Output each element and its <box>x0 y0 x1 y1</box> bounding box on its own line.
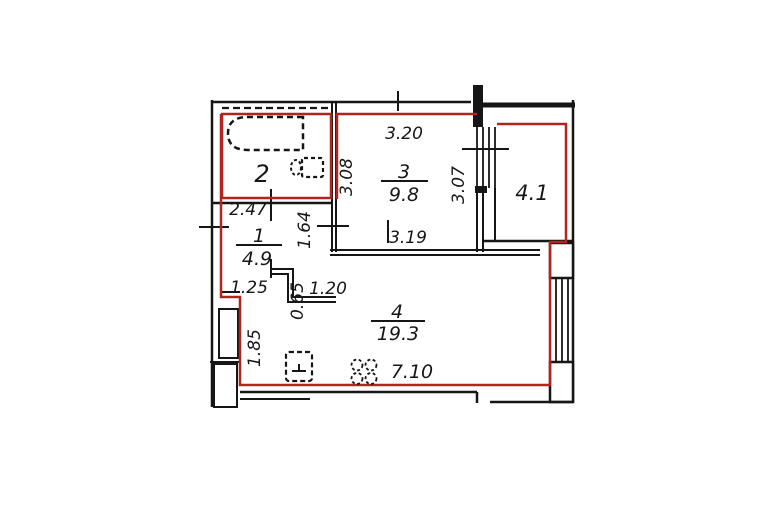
dimension-bathroom-width: 2.47 <box>229 200 267 220</box>
wall-pier-left-2 <box>214 364 237 407</box>
dimension-hall-bottom-left: 1.25 <box>230 278 268 298</box>
bathroom-number: 2 <box>254 160 269 188</box>
dimension-hall-step: 0.65 <box>288 282 308 320</box>
balcony-area: 4.1 <box>515 181 548 205</box>
wall-interior-vertical <box>332 102 336 252</box>
wall-room3-room4 <box>330 250 540 255</box>
dimension-room3-right: 3.07 <box>449 166 469 204</box>
dimension-hall-right: 1.64 <box>295 211 315 249</box>
toilet-bowl-icon <box>291 160 301 175</box>
wall-pier-top <box>473 85 483 127</box>
floor-plan: 3.20 3.08 3 9.8 3.07 3.19 4.1 2 2.47 1 4… <box>0 0 770 510</box>
room3-number: 3 <box>398 161 410 183</box>
dimension-room3-top: 3.20 <box>385 124 423 144</box>
dimension-room4-left: 1.85 <box>245 329 265 367</box>
kitchen-sink-drain-icon <box>292 364 306 371</box>
wall-pier-window-top <box>550 243 573 278</box>
floor-plan-drawing: 3.20 3.08 3 9.8 3.07 3.19 4.1 2 2.47 1 4… <box>0 0 770 510</box>
boundary-bathroom <box>222 114 331 198</box>
wall-balcony-left <box>477 188 495 252</box>
window-room4-icon <box>556 278 568 362</box>
dimension-room4-bottom: 7.10 <box>391 361 433 383</box>
dimension-hall-bottom-right: 1.20 <box>309 279 347 299</box>
room4-number: 4 <box>391 301 403 323</box>
room4-area: 19.3 <box>377 323 419 345</box>
wall-pier-window-bottom <box>550 362 573 402</box>
wall-bottom <box>240 392 573 403</box>
toilet-icon <box>302 158 323 177</box>
room3-area: 9.8 <box>389 184 419 206</box>
dimension-room3-bottom: 3.19 <box>389 228 427 248</box>
bathtub-icon <box>228 117 303 150</box>
dimension-ticks <box>199 91 509 362</box>
window-room3-balcony-icon <box>477 127 495 188</box>
stove-icon <box>352 360 377 385</box>
dimension-room3-left: 3.08 <box>337 158 357 196</box>
hall-area: 4.9 <box>242 248 272 270</box>
hall-number: 1 <box>253 225 265 247</box>
labels: 3.20 3.08 3 9.8 3.07 3.19 4.1 2 2.47 1 4… <box>229 124 549 383</box>
wall-pier-left-1 <box>219 309 238 358</box>
